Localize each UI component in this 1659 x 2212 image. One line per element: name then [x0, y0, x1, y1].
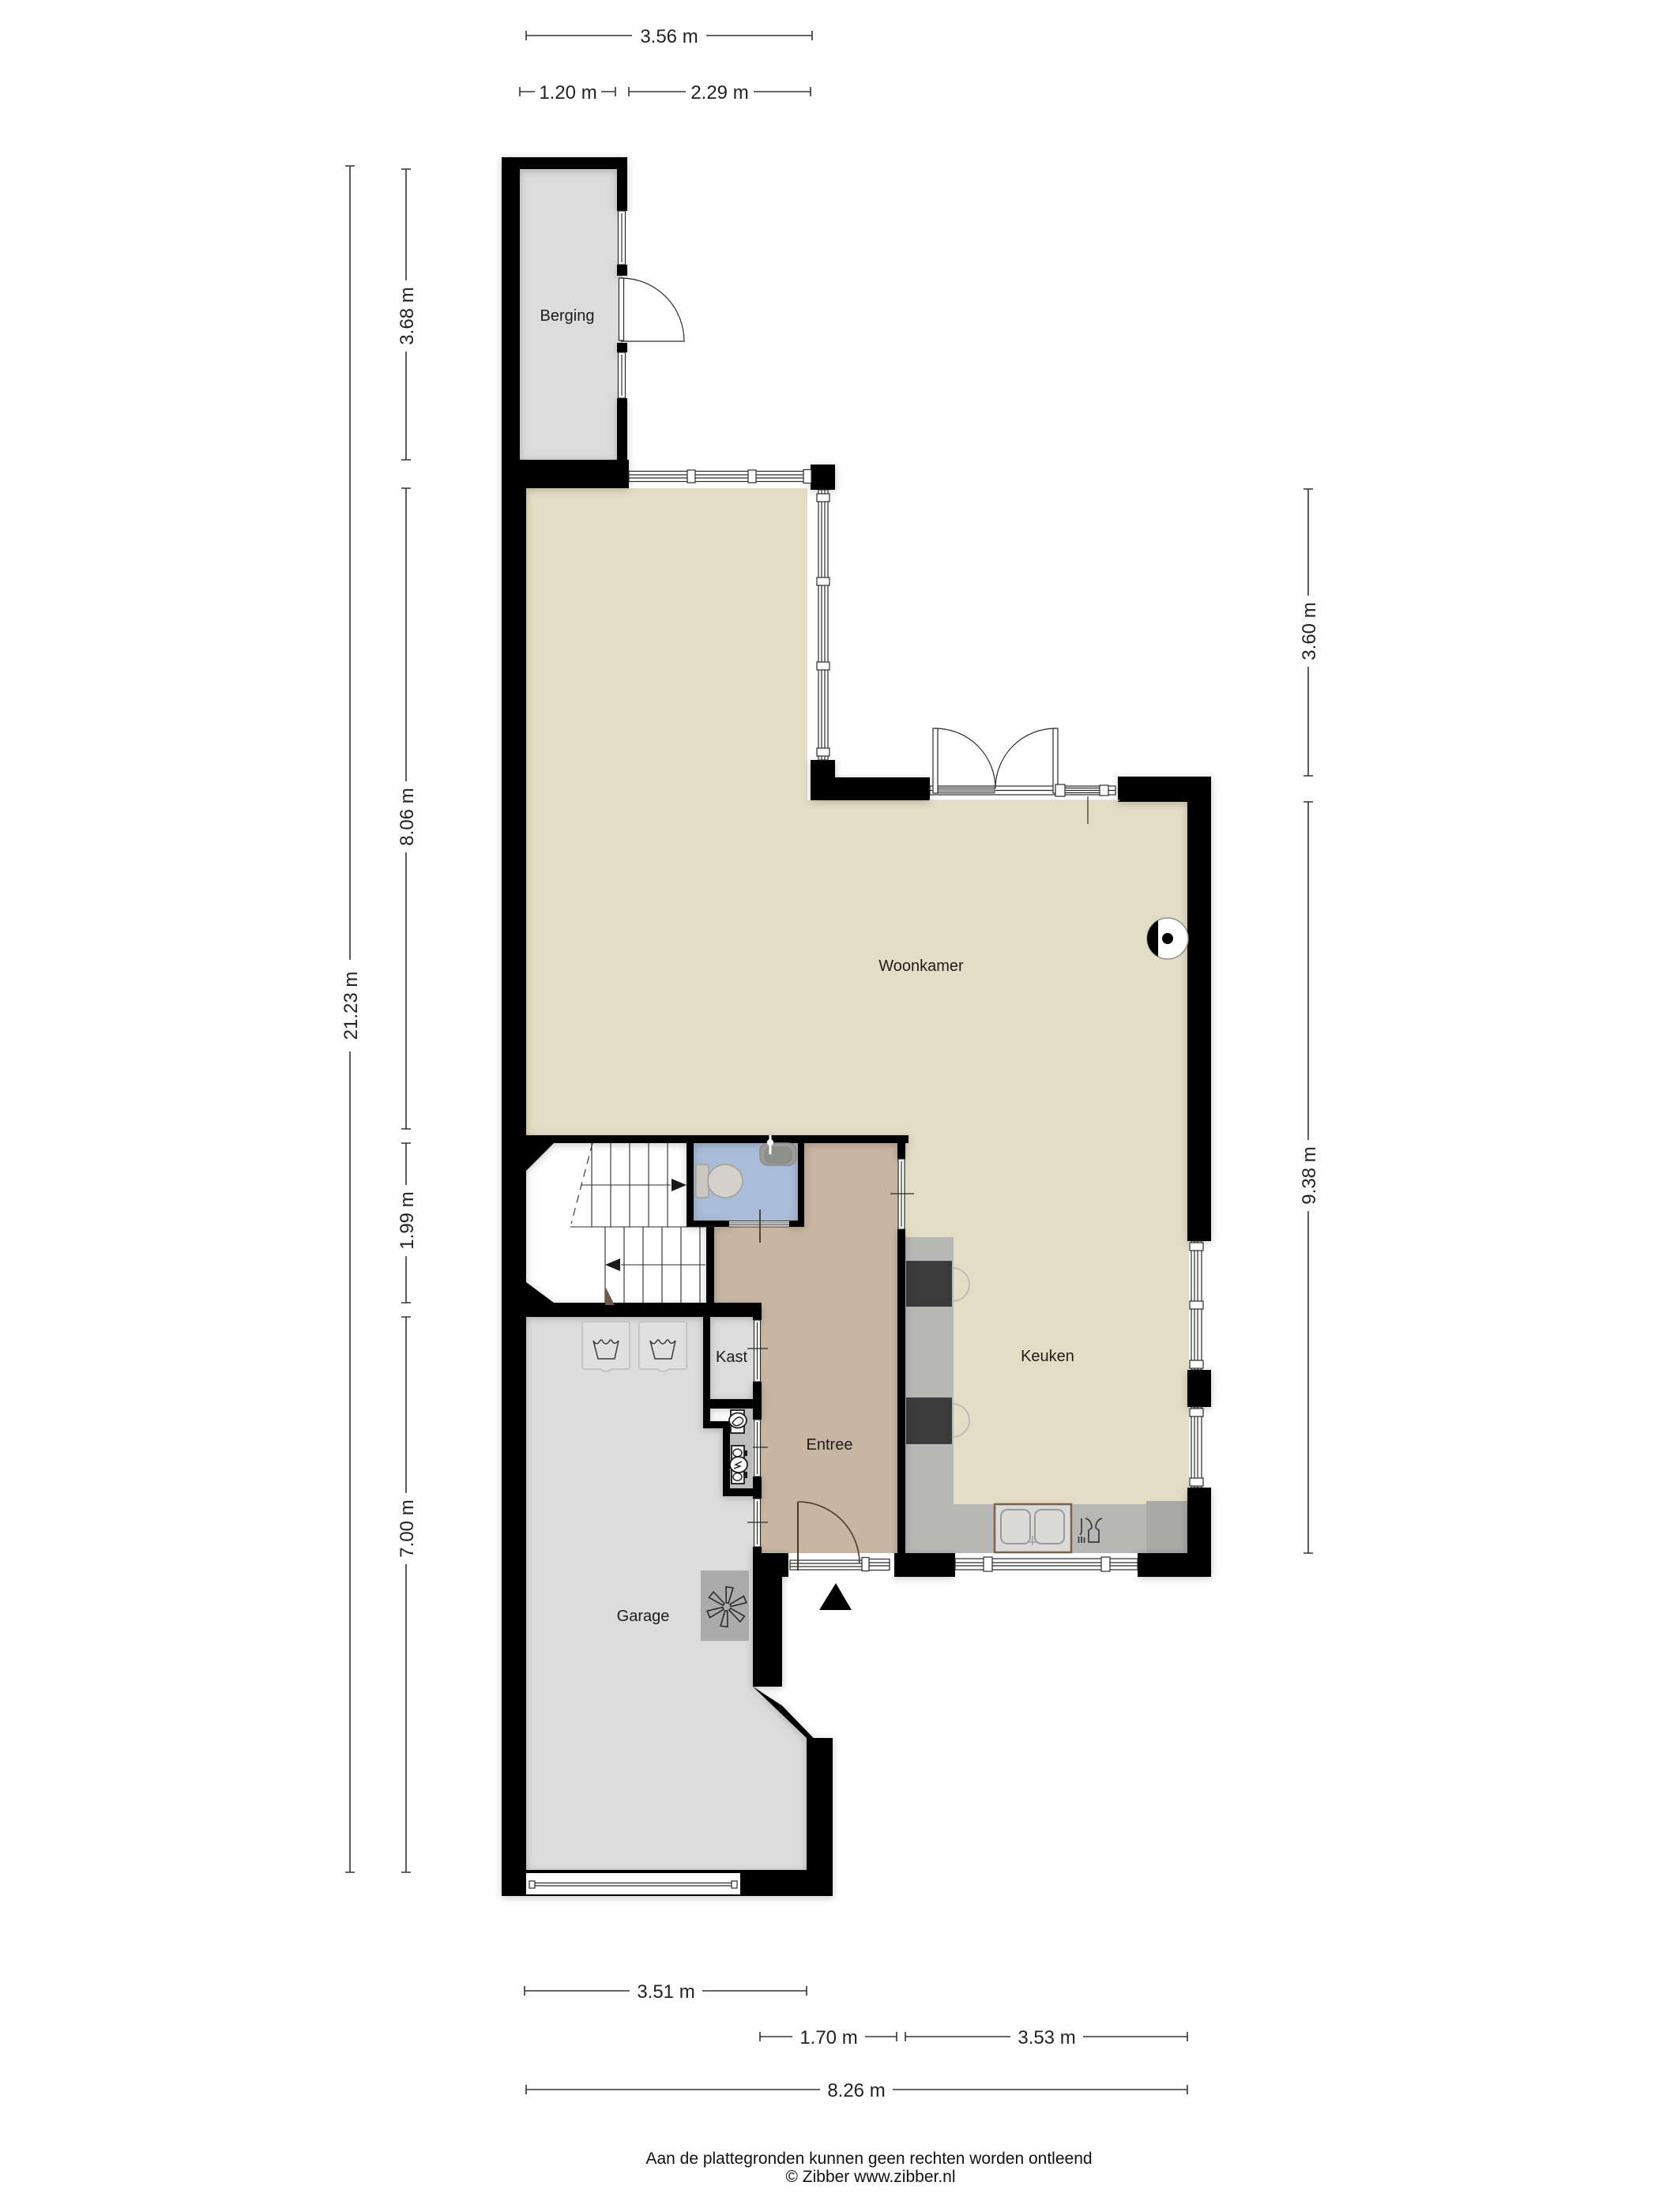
svg-text:Aan de plattegronden kunnen ge: Aan de plattegronden kunnen geen rechten… — [645, 2150, 1092, 2168]
svg-text:3.56 m: 3.56 m — [640, 26, 698, 47]
svg-text:3.68 m: 3.68 m — [397, 287, 418, 344]
svg-text:3.51 m: 3.51 m — [637, 1981, 694, 2003]
svg-text:7.00 m: 7.00 m — [397, 1499, 418, 1557]
svg-text:1.70 m: 1.70 m — [799, 2027, 857, 2048]
svg-text:21.23 m: 21.23 m — [340, 972, 362, 1040]
svg-text:8.26 m: 8.26 m — [827, 2080, 885, 2101]
svg-text:Woonkamer: Woonkamer — [878, 957, 964, 975]
svg-text:8.06 m: 8.06 m — [397, 788, 418, 845]
svg-text:1.20 m: 1.20 m — [539, 82, 596, 103]
svg-text:3.53 m: 3.53 m — [1018, 2027, 1075, 2048]
svg-text:1.99 m: 1.99 m — [397, 1191, 418, 1249]
svg-text:Keuken: Keuken — [1021, 1348, 1074, 1365]
svg-text:Berging: Berging — [540, 307, 595, 325]
svg-text:2.29 m: 2.29 m — [690, 82, 748, 103]
svg-text:© Zibber www.zibber.nl: © Zibber www.zibber.nl — [785, 2168, 955, 2186]
svg-text:9.38 m: 9.38 m — [1299, 1146, 1320, 1204]
svg-text:Entree: Entree — [807, 1436, 853, 1454]
svg-text:Kast: Kast — [716, 1349, 747, 1366]
svg-text:Garage: Garage — [617, 1608, 670, 1625]
svg-text:3.60 m: 3.60 m — [1299, 602, 1320, 660]
